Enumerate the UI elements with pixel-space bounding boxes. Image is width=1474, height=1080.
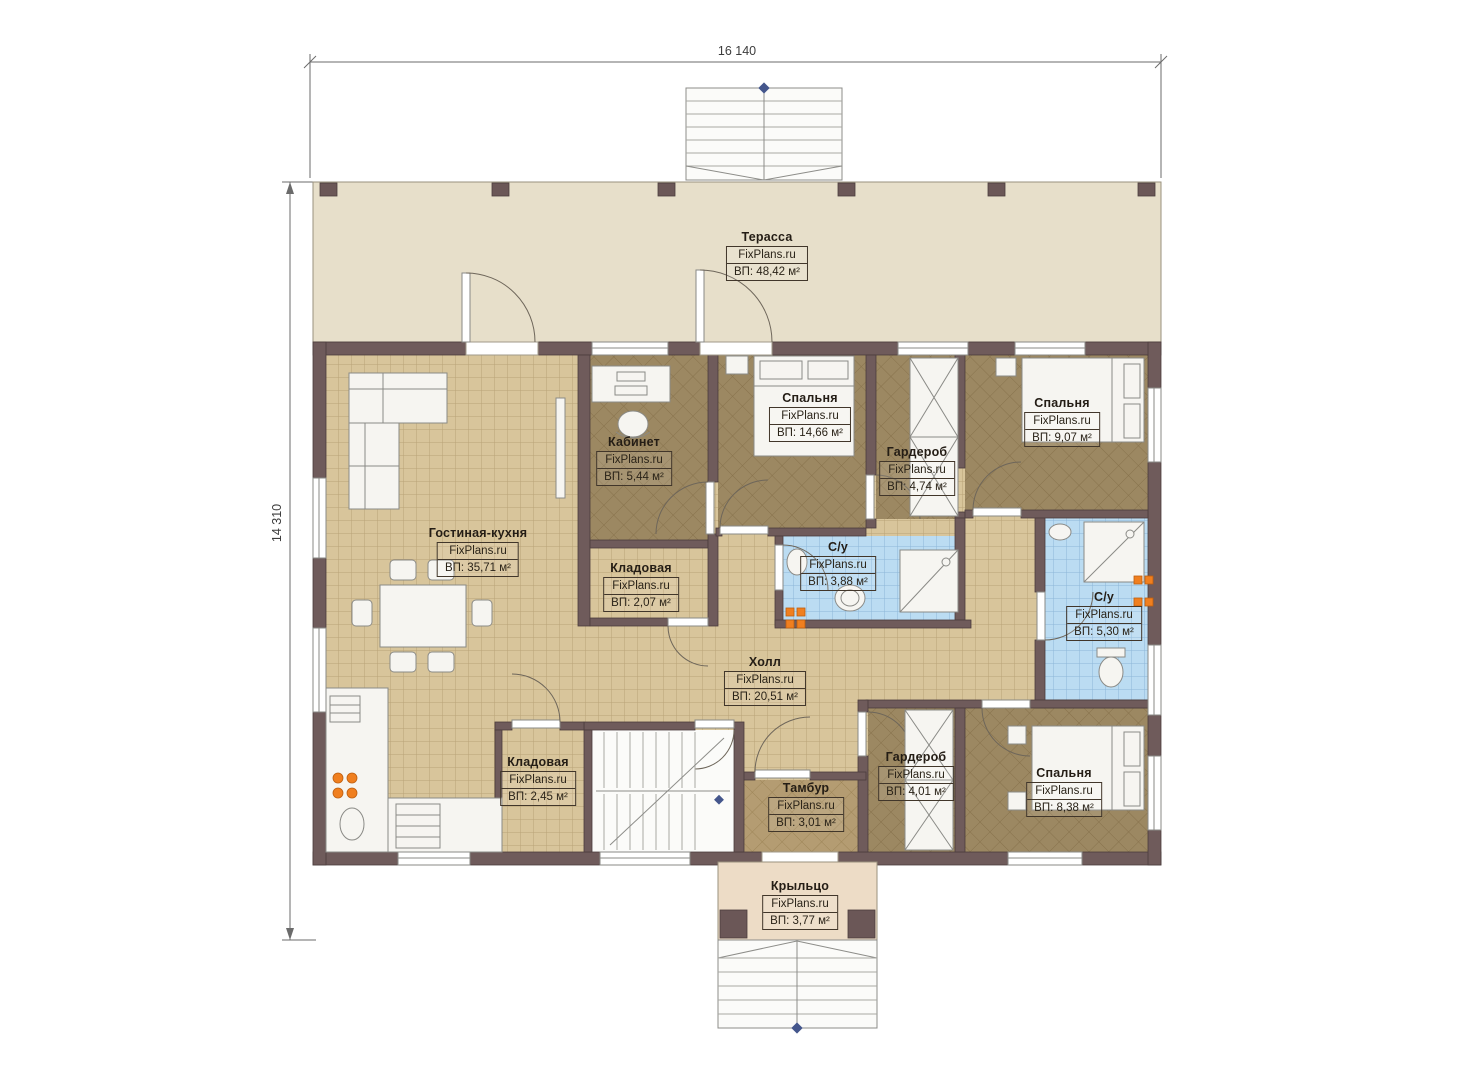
- brand-watermark: FixPlans.ru: [801, 557, 875, 573]
- room-name: Терасса: [726, 230, 808, 244]
- brand-watermark: FixPlans.ru: [1067, 607, 1141, 623]
- room-area: ВП: 2,45 м²: [501, 788, 575, 805]
- room-area: ВП: 3,88 м²: [801, 573, 875, 590]
- room-label-storage-1: Кладовая FixPlans.ruВП: 2,07 м²: [603, 561, 679, 612]
- room-label-bedroom-3: Спальня FixPlans.ruВП: 8,38 м²: [1026, 766, 1102, 817]
- dimension-width: 16 140: [718, 44, 756, 58]
- floor-plan-drawing: [0, 0, 1474, 1080]
- room-area: ВП: 4,01 м²: [879, 783, 953, 800]
- room-label-hall: Холл FixPlans.ruВП: 20,51 м²: [724, 655, 806, 706]
- room-area: ВП: 35,71 м²: [438, 559, 518, 576]
- room-name: С/у: [800, 540, 876, 554]
- brand-watermark: FixPlans.ru: [770, 408, 850, 424]
- room-label-office: Кабинет FixPlans.ruВП: 5,44 м²: [596, 435, 672, 486]
- room-area: ВП: 3,77 м²: [763, 912, 837, 929]
- room-label-bedroom-1: Спальня FixPlans.ruВП: 14,66 м²: [769, 391, 851, 442]
- brand-watermark: FixPlans.ru: [879, 767, 953, 783]
- room-area: ВП: 9,07 м²: [1025, 429, 1099, 446]
- room-name: Гардероб: [879, 445, 955, 459]
- room-area: ВП: 48,42 м²: [727, 263, 807, 280]
- brand-watermark: FixPlans.ru: [604, 578, 678, 594]
- room-name: Спальня: [769, 391, 851, 405]
- room-label-terrace: Терасса FixPlans.ruВП: 48,42 м²: [726, 230, 808, 281]
- room-name: С/у: [1066, 590, 1142, 604]
- brand-watermark: FixPlans.ru: [438, 543, 518, 559]
- room-area: ВП: 3,01 м²: [769, 814, 843, 831]
- room-label-storage-2: Кладовая FixPlans.ruВП: 2,45 м²: [500, 755, 576, 806]
- brand-watermark: FixPlans.ru: [1025, 413, 1099, 429]
- brand-watermark: FixPlans.ru: [1027, 783, 1101, 799]
- brand-watermark: FixPlans.ru: [727, 247, 807, 263]
- brand-watermark: FixPlans.ru: [501, 772, 575, 788]
- room-name: Кабинет: [596, 435, 672, 449]
- room-label-bathroom-1: С/у FixPlans.ruВП: 3,88 м²: [800, 540, 876, 591]
- room-name: Гостиная-кухня: [429, 526, 528, 540]
- room-area: ВП: 5,44 м²: [597, 468, 671, 485]
- room-label-vestibule: Тамбур FixPlans.ruВП: 3,01 м²: [768, 781, 844, 832]
- terrace-stairs: [686, 82, 842, 180]
- room-label-wardrobe-1: Гардероб FixPlans.ruВП: 4,74 м²: [879, 445, 955, 496]
- room-area: ВП: 4,74 м²: [880, 478, 954, 495]
- room-label-bathroom-2: С/у FixPlans.ruВП: 5,30 м²: [1066, 590, 1142, 641]
- room-label-wardrobe-2: Гардероб FixPlans.ruВП: 4,01 м²: [878, 750, 954, 801]
- room-label-porch: Крыльцо FixPlans.ruВП: 3,77 м²: [762, 879, 838, 930]
- room-area: ВП: 8,38 м²: [1027, 799, 1101, 816]
- room-name: Кладовая: [603, 561, 679, 575]
- room-area: ВП: 5,30 м²: [1067, 623, 1141, 640]
- dimension-height: 14 310: [270, 504, 284, 542]
- room-name: Холл: [724, 655, 806, 669]
- brand-watermark: FixPlans.ru: [725, 672, 805, 688]
- room-name: Спальня: [1024, 396, 1100, 410]
- room-area: ВП: 2,07 м²: [604, 594, 678, 611]
- room-area: ВП: 14,66 м²: [770, 424, 850, 441]
- room-area: ВП: 20,51 м²: [725, 688, 805, 705]
- brand-watermark: FixPlans.ru: [769, 798, 843, 814]
- room-name: Кладовая: [500, 755, 576, 769]
- room-label-bedroom-2: Спальня FixPlans.ruВП: 9,07 м²: [1024, 396, 1100, 447]
- room-name: Тамбур: [768, 781, 844, 795]
- tv: [556, 398, 565, 498]
- brand-watermark: FixPlans.ru: [597, 452, 671, 468]
- room-name: Гардероб: [878, 750, 954, 764]
- room-name: Крыльцо: [762, 879, 838, 893]
- room-label-living-kitchen: Гостиная-кухня FixPlans.ruВП: 35,71 м²: [429, 526, 528, 577]
- floor-plan: 16 140 14 310 Терасса FixPlans.ruВП: 48,…: [0, 0, 1474, 1080]
- porch-stairs: [718, 940, 877, 1034]
- brand-watermark: FixPlans.ru: [880, 462, 954, 478]
- brand-watermark: FixPlans.ru: [763, 896, 837, 912]
- room-name: Спальня: [1026, 766, 1102, 780]
